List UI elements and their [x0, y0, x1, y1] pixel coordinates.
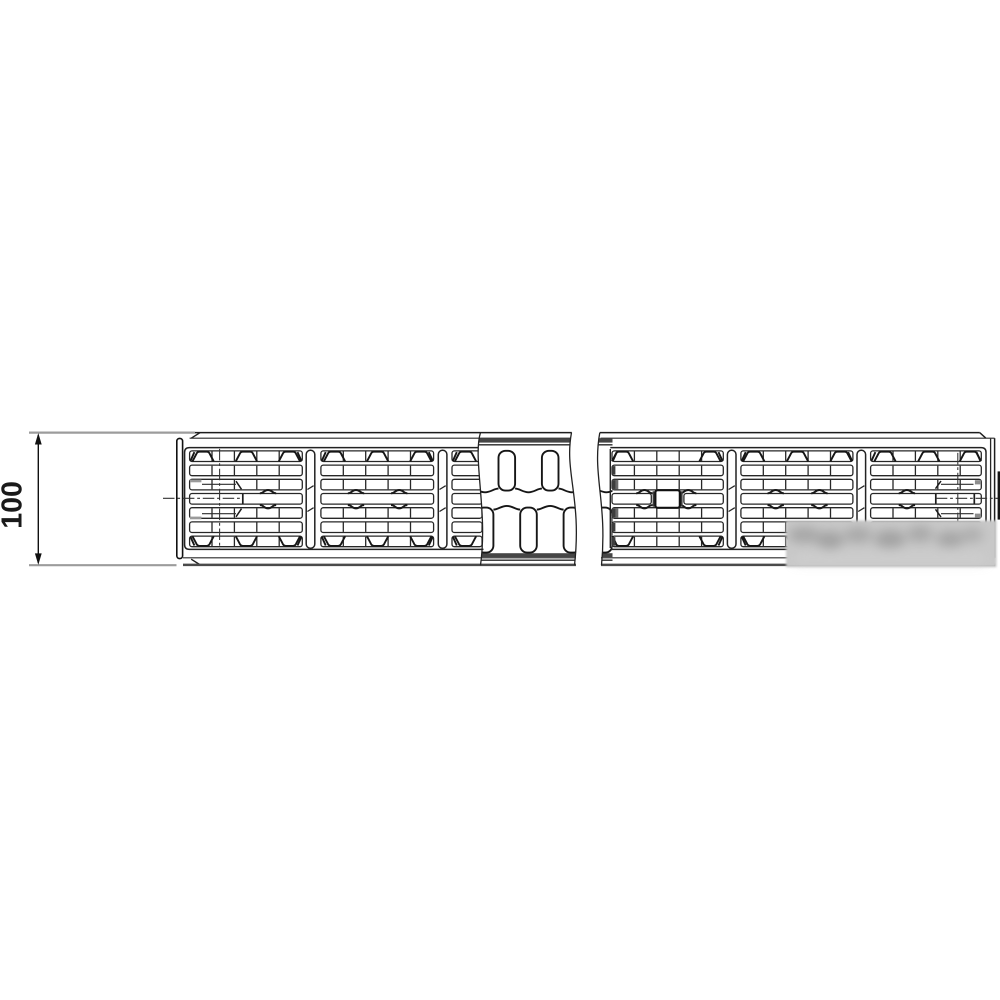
svg-text:100: 100 — [0, 481, 29, 529]
